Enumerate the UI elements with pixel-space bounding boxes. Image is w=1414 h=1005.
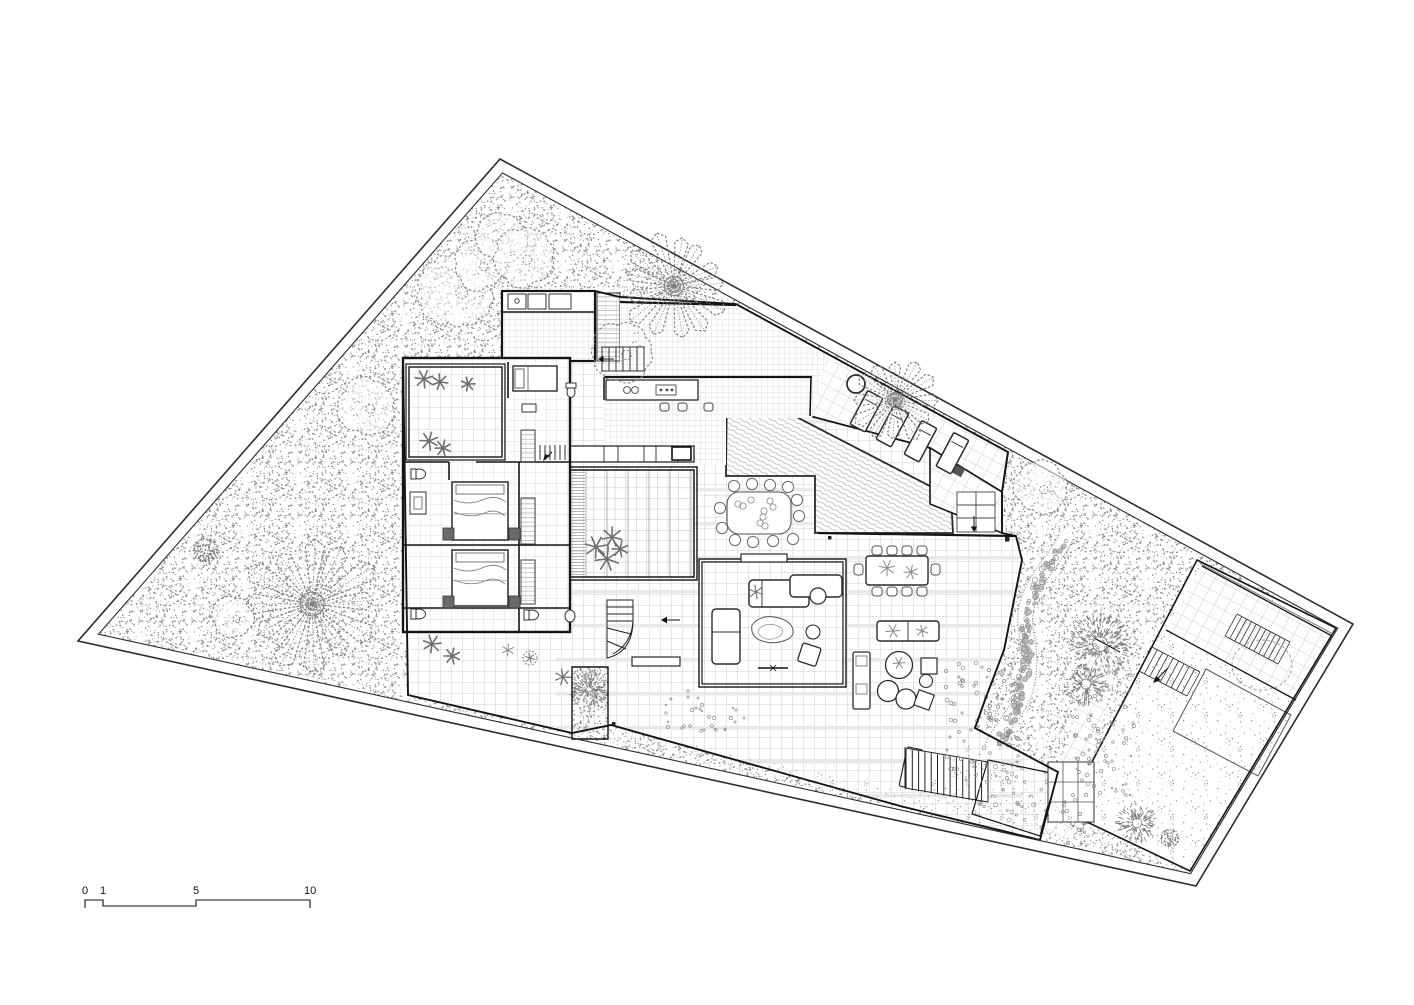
svg-text:10: 10 <box>304 885 316 897</box>
svg-text:1: 1 <box>100 885 106 897</box>
svg-text:5: 5 <box>193 885 199 897</box>
svg-text:0: 0 <box>82 885 88 897</box>
